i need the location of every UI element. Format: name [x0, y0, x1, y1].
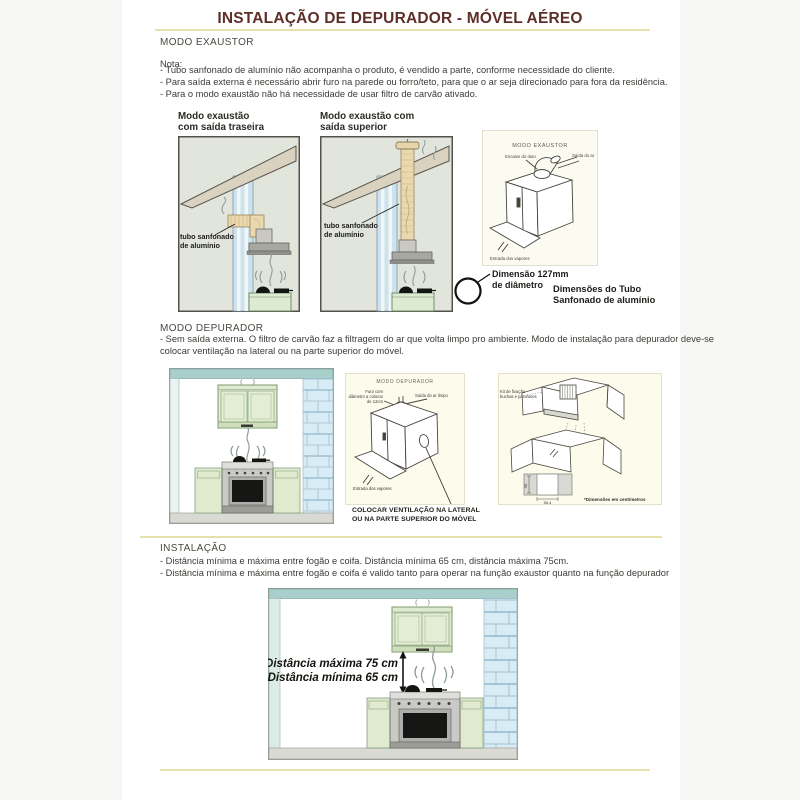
tube-label: de alumínio	[180, 241, 221, 250]
pan-icon	[426, 688, 442, 692]
duct-label: Encaixe do duto	[505, 154, 536, 159]
floor	[170, 513, 333, 523]
ceiling-band	[269, 589, 517, 599]
kit-label: buchas e parafusos	[500, 394, 537, 399]
header-rule	[155, 29, 650, 31]
ceiling-band	[170, 369, 333, 379]
ventilation-note: COLOCAR VENTILAÇÃO NA LATERAL OU NA PART…	[352, 507, 492, 524]
distance-max-label: Distância máxima 75 cm	[268, 658, 398, 670]
diagram-title-line: Modo exaustão	[178, 111, 264, 122]
section-heading-exaustor: MODO EXAUSTOR	[160, 37, 254, 48]
section-heading-instalacao: INSTALAÇÃO	[160, 543, 227, 554]
note-line: - Tubo sanfonado de alumínio não acompan…	[160, 65, 615, 75]
diagram-kitchen-distances: Distância máxima 75 cm Distância mínima …	[268, 588, 518, 760]
diagram-unit-depurador: MODO DEPURADOR Furo com diâmetro a coloc…	[345, 373, 465, 505]
instalacao-bullet: - Distância mínima e máxima entre fogão …	[160, 556, 569, 566]
brick-wall	[303, 379, 333, 514]
diagram-title-line: com saída traseira	[178, 122, 264, 133]
wall-cabinet	[218, 385, 277, 428]
diagram-title-superior: Modo exaustão com saída superior	[320, 111, 414, 133]
sketch-title: MODO EXAUSTOR	[512, 143, 568, 149]
brick-wall	[484, 599, 517, 749]
vapors-label: Entrada dos vapores	[490, 256, 530, 261]
instalacao-bullet: - Distância mínima e máxima entre fogão …	[160, 568, 669, 578]
diagram-exaustao-superior: tubo sanfonado de alumínio	[320, 136, 453, 312]
diagram-title-line: saída superior	[320, 122, 414, 133]
pan-icon	[252, 459, 266, 463]
dimension-label: Dimensão 127mm	[492, 269, 569, 279]
duct-cap	[396, 142, 419, 149]
note-line: - Para saída externa é necessário abrir …	[160, 77, 668, 87]
tube-label: tubo sanfonado	[324, 221, 379, 230]
footer-rule	[160, 769, 650, 771]
section-heading-depurador: MODO DEPURADOR	[160, 323, 263, 334]
diagram-cabinet-mounting: Kit de fixação buchas e parafusos 30 55,…	[498, 373, 662, 505]
floor	[269, 748, 517, 759]
sketch-title: MODO DEPURADOR	[376, 379, 433, 385]
label-pointer	[478, 274, 490, 282]
tube-label: tubo sanfonado	[180, 232, 235, 241]
pan-icon	[274, 289, 289, 294]
diagram-kitchen-depurador	[169, 368, 334, 524]
diagram-unit-exaustor: MODO EXAUSTOR Encaixe do duto Saída do a…	[482, 130, 598, 266]
tube-dimension: Dimensão 127mm de diâmetro Dimensões do …	[452, 264, 664, 312]
ventilation-note-line: COLOCAR VENTILAÇÃO NA LATERAL	[352, 507, 492, 516]
handle-icon	[241, 425, 253, 428]
dimension-label: de diâmetro	[492, 280, 544, 290]
vapors-label: Entrada dos vapores	[353, 486, 392, 491]
dim-vertical: 30	[523, 483, 528, 488]
diagram-title-traseira: Modo exaustão com saída traseira	[178, 111, 264, 133]
section-rule	[140, 536, 662, 538]
depurador-text: colocar ventilação na lateral ou na part…	[160, 346, 404, 356]
note-line: - Para o modo exaustão não há necessidad…	[160, 89, 477, 99]
pan-icon	[417, 289, 432, 294]
wall-cabinet	[392, 607, 452, 652]
left-column	[170, 379, 179, 514]
tube-label: de alumínio	[324, 230, 365, 239]
tube-circle-icon	[456, 279, 481, 304]
ventilation-note-line: OU NA PARTE SUPERIOR DO MÓVEL	[352, 516, 492, 525]
page-title: INSTALAÇÃO DE DEPURADOR - MÓVEL AÉREO	[150, 10, 650, 28]
diagram-title-line: Modo exaustão com	[320, 111, 414, 122]
dim-horizontal: 55,4	[544, 500, 553, 505]
diagram-exaustao-traseira: tubo sanfonado de alumínio	[178, 136, 300, 312]
distance-min-label: Distância mínima 65 cm	[268, 672, 398, 684]
tube-caption: Dimensões do Tubo	[553, 284, 641, 294]
tube-caption: Sanfonado de alumínio	[553, 295, 656, 305]
screenshot-root: { "title": "INSTALAÇÃO DE DEPURADOR - MÓ…	[0, 0, 800, 800]
depurador-text: - Sem saída externa. O filtro de carvão …	[160, 334, 714, 344]
air-out-label: Saída do ar limpo	[415, 393, 448, 398]
dimensions-caption: *Dimensões em centímetros	[584, 497, 646, 502]
handle-icon	[416, 649, 429, 652]
wall-studs	[377, 176, 397, 311]
hole-label: de 12cm	[367, 399, 384, 404]
